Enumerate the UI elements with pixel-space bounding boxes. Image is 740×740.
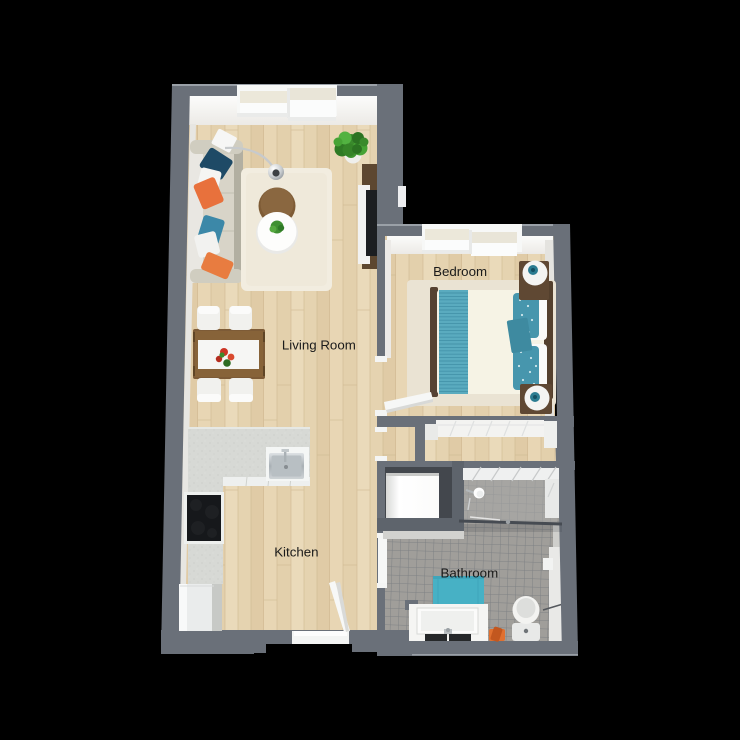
svg-text:Kitchen: Kitchen (274, 545, 318, 560)
svg-text:Living Room: Living Room (282, 337, 356, 352)
svg-text:Bathroom: Bathroom (441, 566, 499, 581)
svg-text:Bedroom: Bedroom (433, 264, 487, 279)
